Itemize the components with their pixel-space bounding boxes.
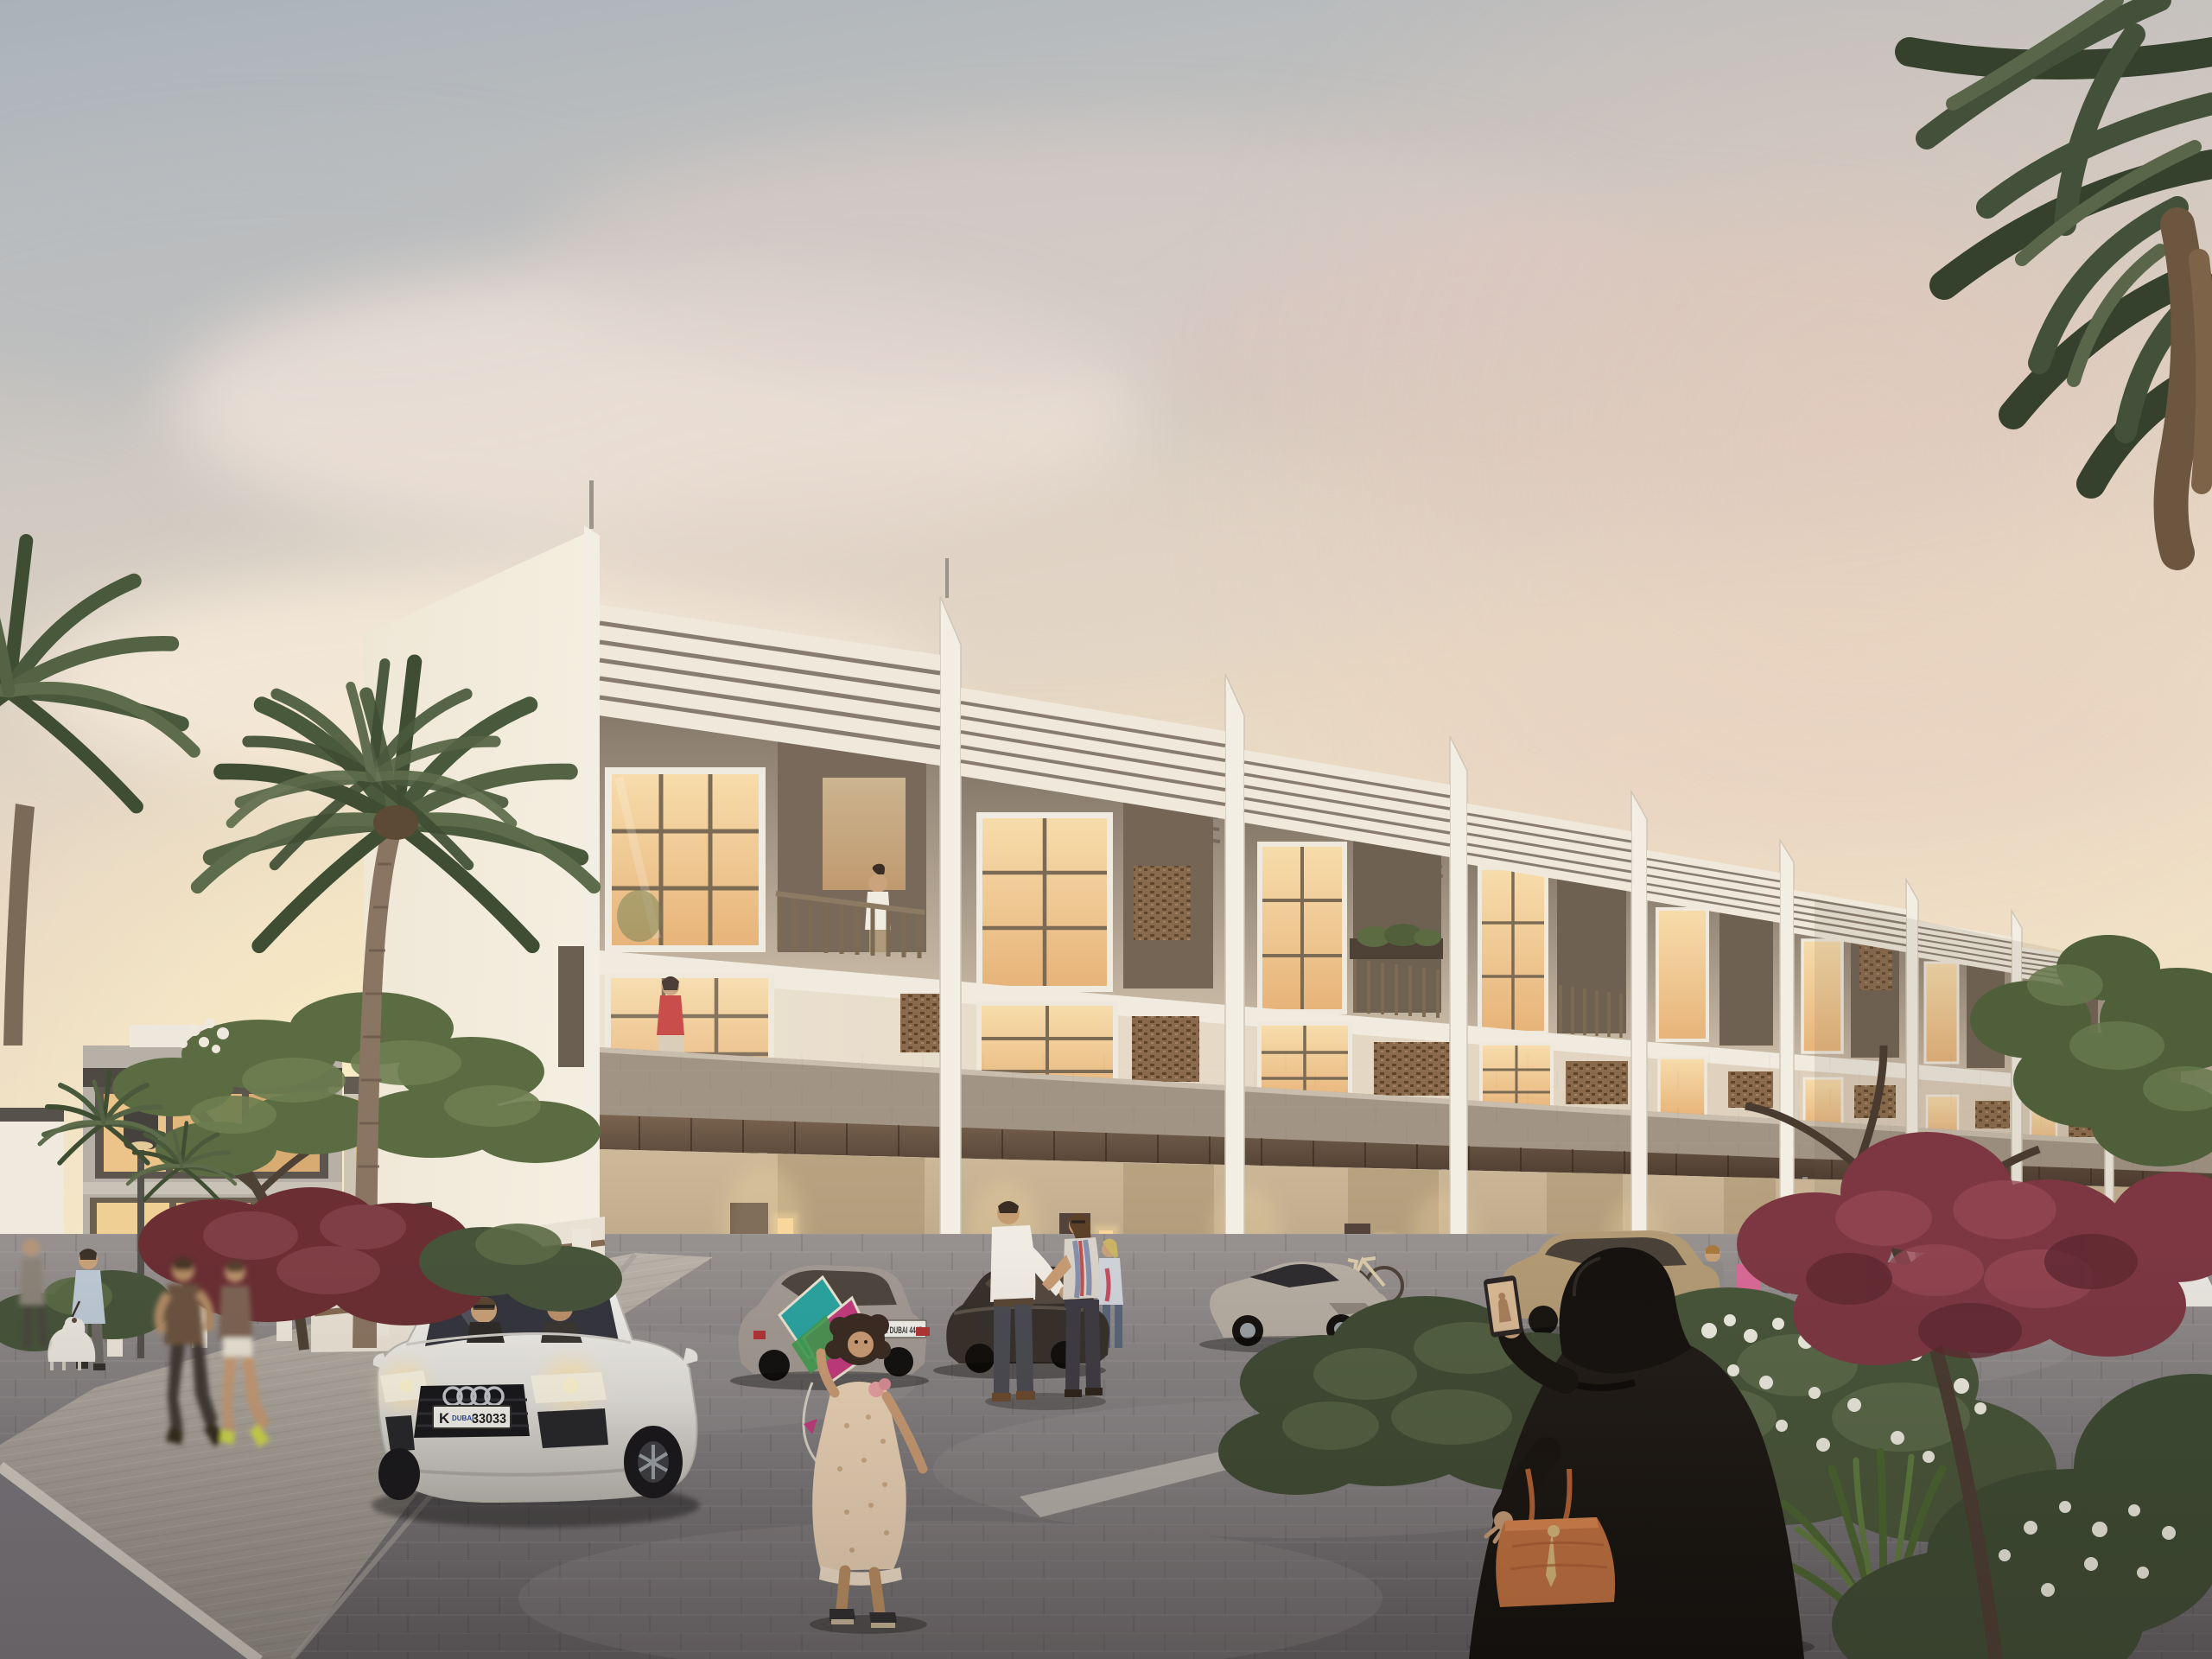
render-scene: K DUBAI 4445 (0, 0, 2212, 1659)
dusk-vignette (0, 0, 2212, 1659)
